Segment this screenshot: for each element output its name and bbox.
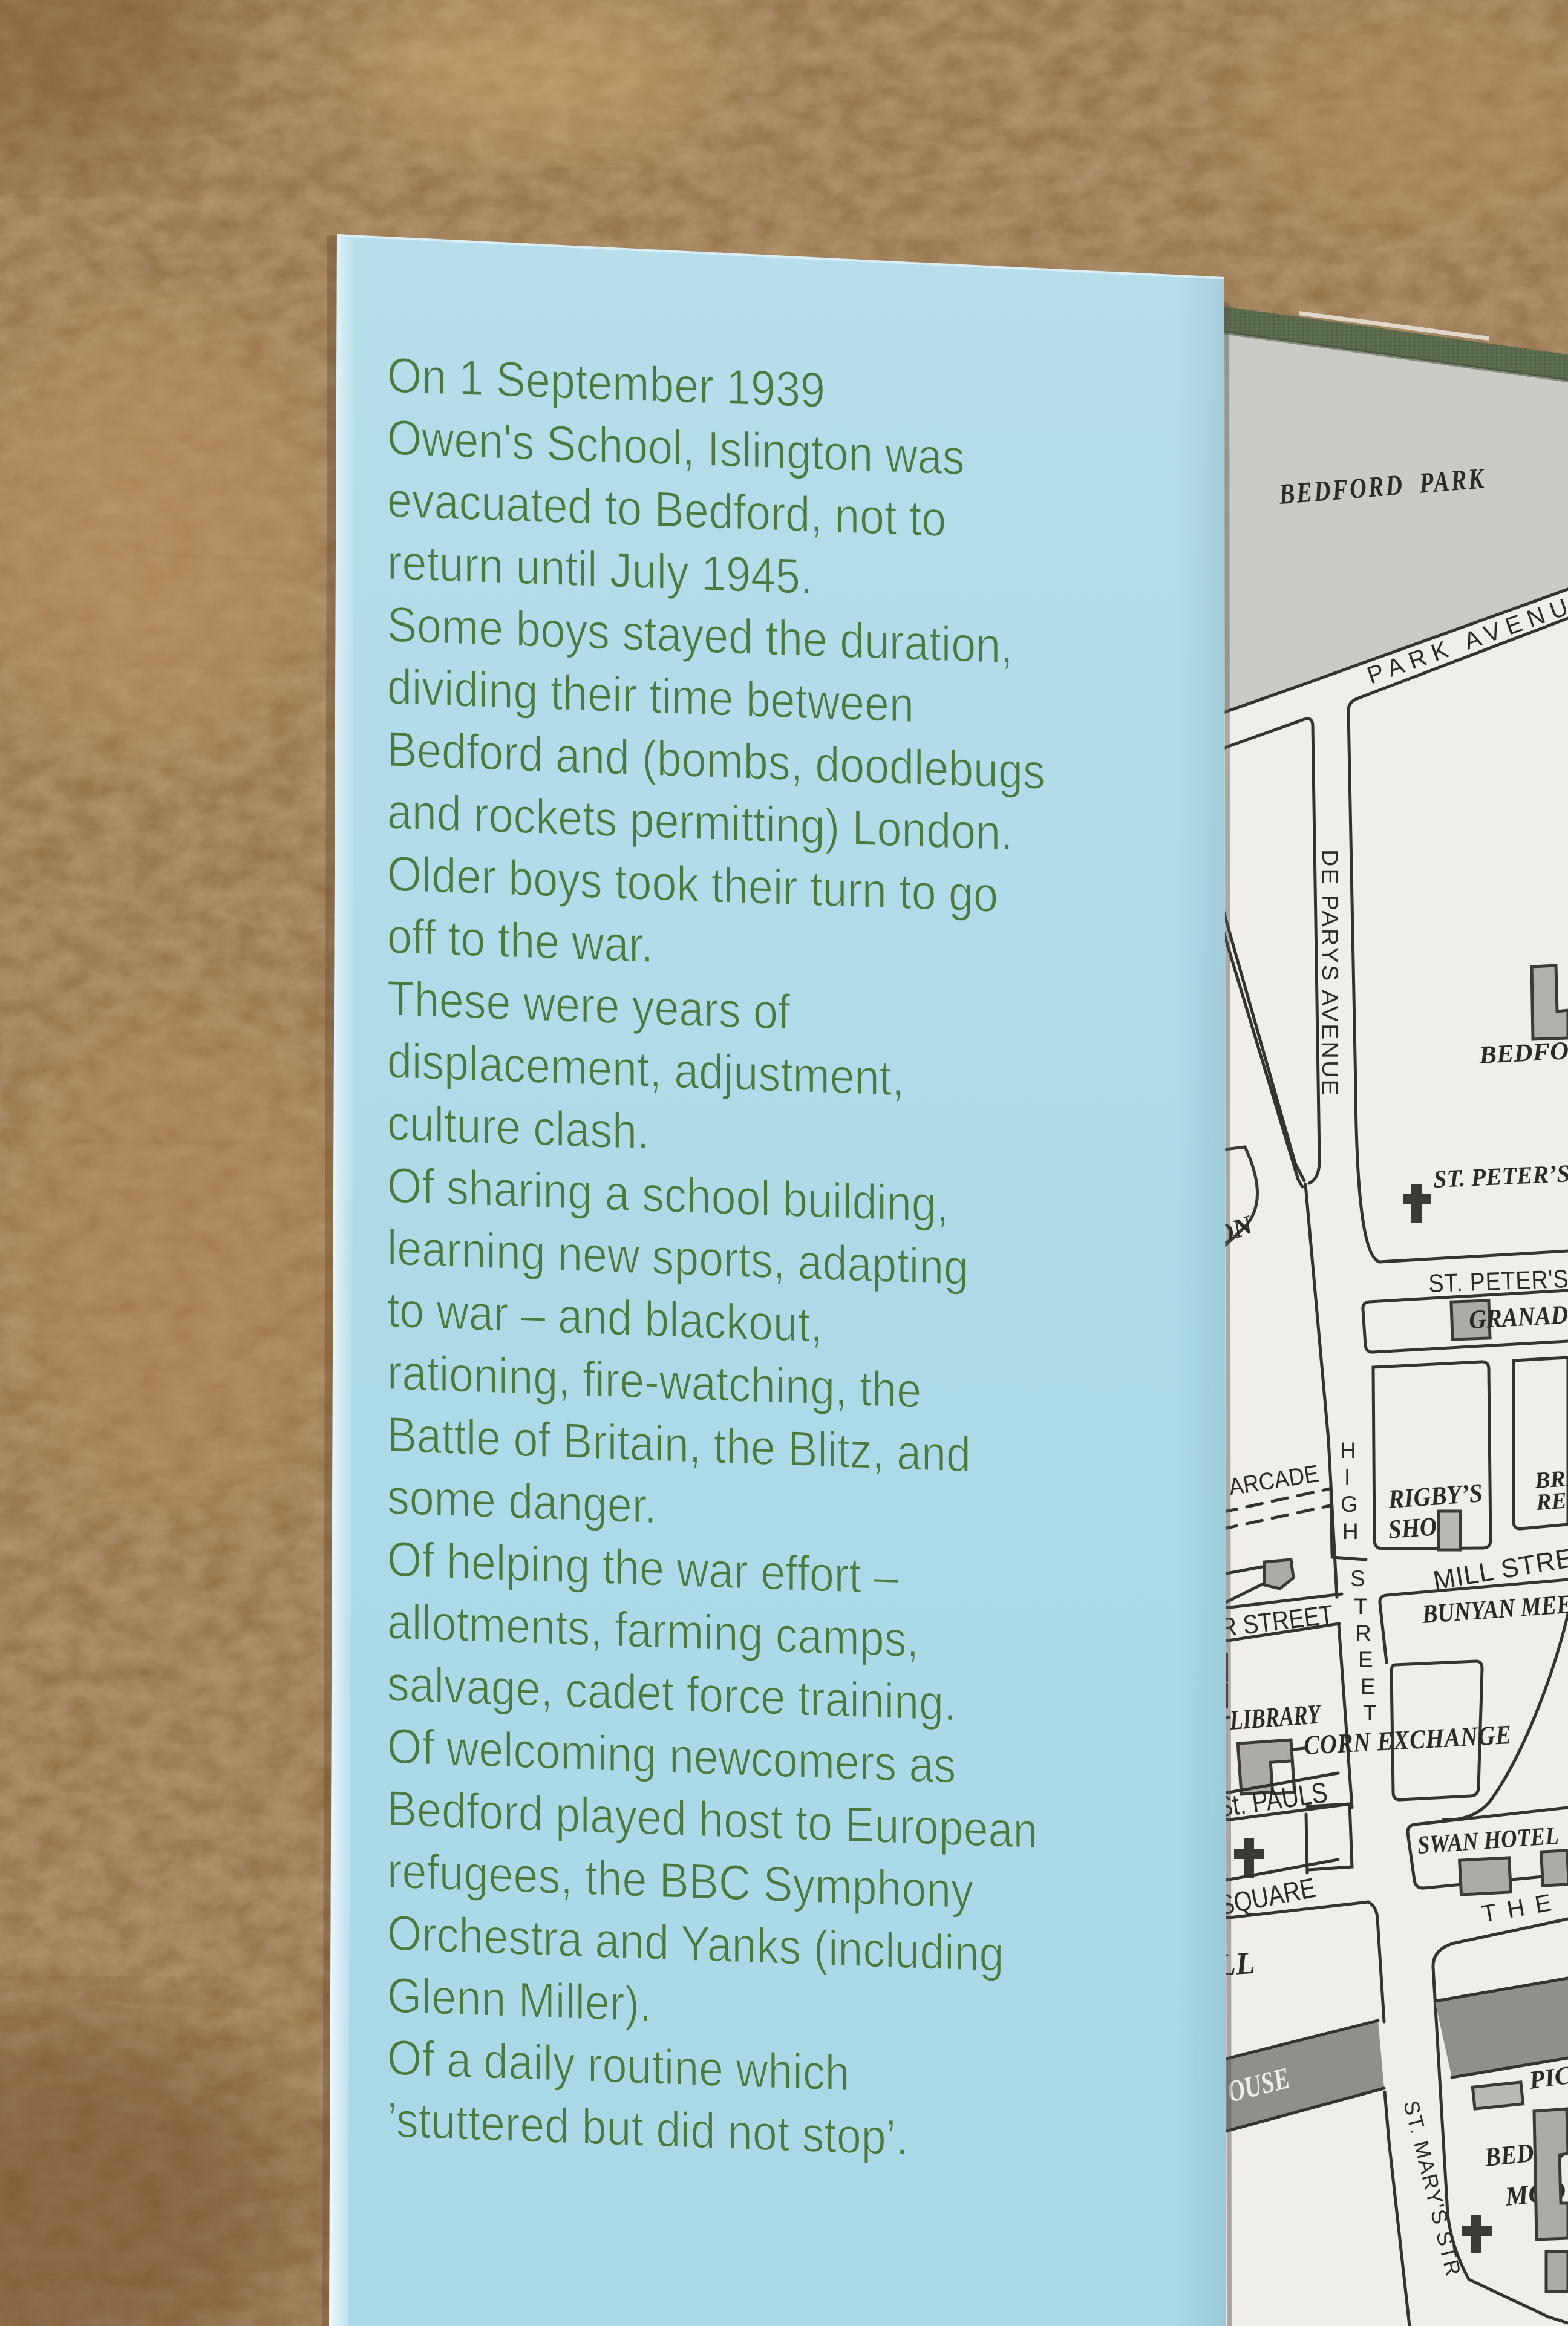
svg-text:H: H	[1340, 1438, 1356, 1463]
svg-text:RES: RES	[1535, 1487, 1568, 1515]
svg-text:R: R	[1355, 1621, 1371, 1645]
svg-text:G: G	[1341, 1492, 1358, 1517]
svg-text:T: T	[1354, 1594, 1368, 1619]
svg-text:I: I	[1344, 1465, 1350, 1489]
svg-text:H: H	[1342, 1519, 1359, 1544]
svg-text:S: S	[1350, 1566, 1365, 1591]
svg-text:PIC: PIC	[1527, 2061, 1568, 2095]
svg-text:ST. PETER’S: ST. PETER’S	[1432, 1159, 1568, 1193]
svg-text:LIBRARY: LIBRARY	[1228, 1698, 1323, 1736]
svg-text:BEDFO: BEDFO	[1478, 1037, 1568, 1070]
svg-text:T: T	[1363, 1700, 1377, 1725]
svg-text:E: E	[1361, 1674, 1376, 1699]
svg-text:E: E	[1358, 1647, 1373, 1672]
svg-text:DE PARYS AVENUE: DE PARYS AVENUE	[1318, 849, 1342, 1097]
svg-text:GRANAD: GRANAD	[1468, 1299, 1568, 1335]
